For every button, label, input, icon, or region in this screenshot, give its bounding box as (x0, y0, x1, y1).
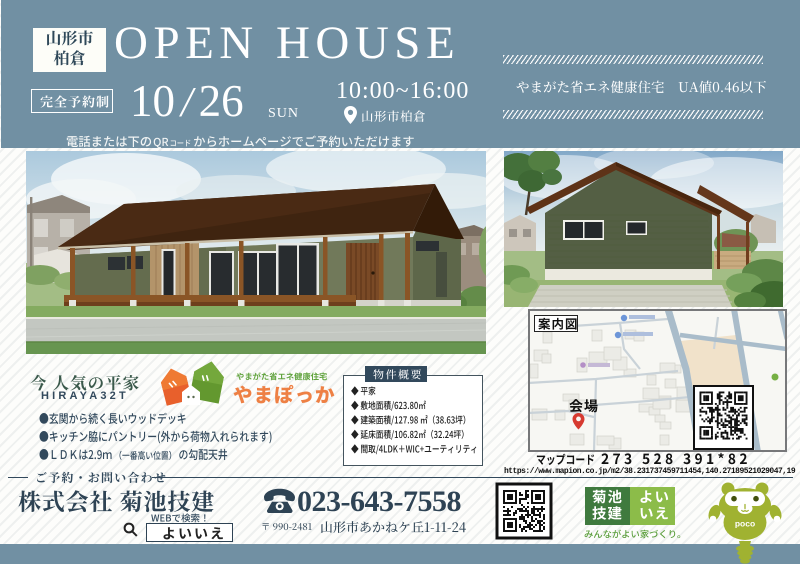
svg-text:poco: poco (735, 519, 755, 529)
